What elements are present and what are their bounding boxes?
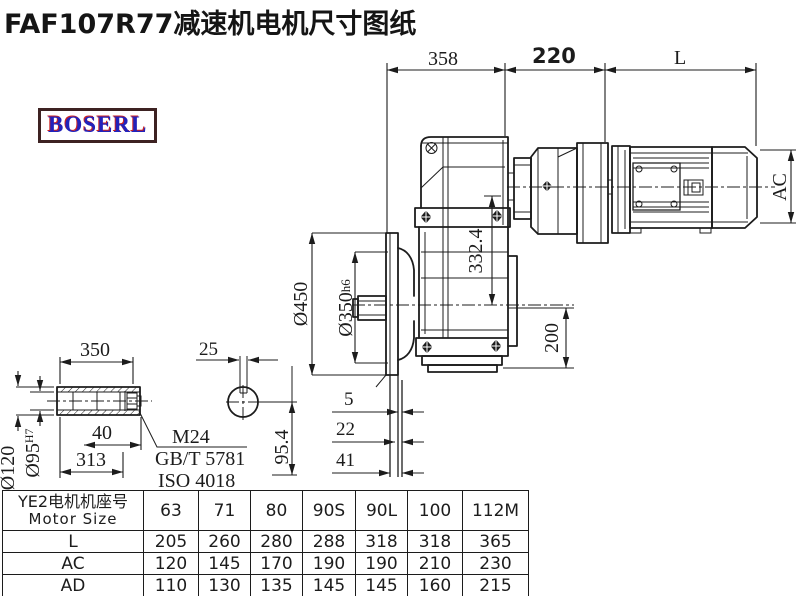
dim-shaft-40: 40 [92,422,112,444]
dim-shaft-313: 313 [76,449,106,471]
row-label: L [3,531,144,553]
dim-220: 220 [532,44,576,68]
col-header: 80 [251,491,303,531]
table-header-row: YE2电机机座号 Motor Size 63 71 80 90S 90L 100… [3,491,529,531]
table-header-en: Motor Size [3,511,143,528]
cell: 190 [303,553,356,575]
dim-shaft-350: 350 [80,339,110,361]
cell: 365 [463,531,529,553]
dim-350h6: Ø350h6 [335,279,357,337]
table-header-cn: YE2电机机座号 [3,493,143,511]
dim-L: L [674,47,686,69]
table-row-L: L 205 260 280 288 318 318 365 [3,531,529,553]
cell: 260 [199,531,251,553]
cell: 130 [199,575,251,596]
cell: 135 [251,575,303,596]
dim-22: 22 [336,419,355,440]
col-header: 71 [199,491,251,531]
table-header-motor-size: YE2电机机座号 Motor Size [3,491,144,531]
cell: 110 [144,575,199,596]
dim-shaft-95-4: 95.4 [271,430,293,465]
dim-200: 200 [541,323,563,353]
note-iso: ISO 4018 [158,470,235,490]
table-row-AD: AD 110 130 135 145 145 160 215 [3,575,529,596]
dim-5: 5 [344,389,354,410]
dim-41: 41 [336,450,355,471]
col-header: 90S [303,491,356,531]
flange-dimensions: Ø450 Ø350h6 [290,233,388,375]
note-m24: M24 [172,426,210,448]
cell: 145 [303,575,356,596]
dim-AC: AC [769,173,791,201]
dim-332-4: 332.4 [465,229,487,274]
col-header: 100 [408,491,463,531]
output-flange [353,233,414,477]
motor-size-table: YE2电机机座号 Motor Size 63 71 80 90S 90L 100… [2,490,529,596]
dim-shaft-95: Ø95H7 [22,428,44,477]
technical-drawing: 358 220 L AC [0,0,800,490]
note-gbt: GB/T 5781 [155,448,245,470]
dim-shaft-25: 25 [199,339,218,360]
col-header: 112M [463,491,529,531]
dim-shaft-120: Ø120 [0,446,19,490]
cell: 280 [251,531,303,553]
cell: 170 [251,553,303,575]
motor [612,146,757,233]
cell: 120 [144,553,199,575]
cell: 145 [356,575,408,596]
cell: 230 [463,553,529,575]
row-label: AC [3,553,144,575]
top-dimensions: 358 220 L [387,44,756,233]
cell: 318 [408,531,463,553]
col-header: 90L [356,491,408,531]
cell: 210 [408,553,463,575]
cell: 288 [303,531,356,553]
motor-adapter [508,143,612,243]
dim-358: 358 [428,48,458,70]
cell: 205 [144,531,199,553]
col-header: 63 [144,491,199,531]
shaft-detail: M24 GB/T 5781 ISO 4018 350 40 313 Ø120 Ø… [0,339,247,490]
cell: 190 [356,553,408,575]
cell: 160 [408,575,463,596]
row-label: AD [3,575,144,596]
cell: 318 [356,531,408,553]
cell: 215 [463,575,529,596]
table-row-AC: AC 120 145 170 190 190 210 230 [3,553,529,575]
dim-450: Ø450 [290,282,312,326]
drawing-page: FAF107R77减速机电机尺寸图纸 BOSERL [0,0,800,596]
cell: 145 [199,553,251,575]
flange-face-dimensions: 5 22 41 [332,389,424,473]
